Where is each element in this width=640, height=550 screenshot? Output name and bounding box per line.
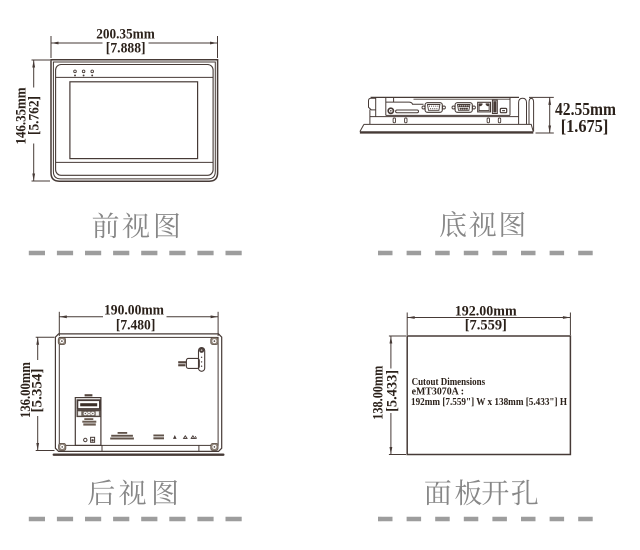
svg-text:[5.762]: [5.762] (27, 96, 43, 135)
svg-text:[1.675]: [1.675] (561, 116, 609, 136)
svg-text:[5.433]: [5.433] (384, 370, 400, 412)
svg-text:192mm [7.559"] W x 138mm [5.43: 192mm [7.559"] W x 138mm [5.433"] H (411, 397, 567, 408)
svg-text:190.00mm: 190.00mm (104, 303, 164, 319)
svg-text:[5.354]: [5.354] (30, 369, 46, 413)
svg-text:eMT3070A :: eMT3070A : (412, 387, 464, 398)
svg-text:[7.559]: [7.559] (465, 318, 507, 334)
svg-text:[7.888]: [7.888] (106, 41, 146, 57)
svg-text:[7.480]: [7.480] (116, 317, 156, 333)
